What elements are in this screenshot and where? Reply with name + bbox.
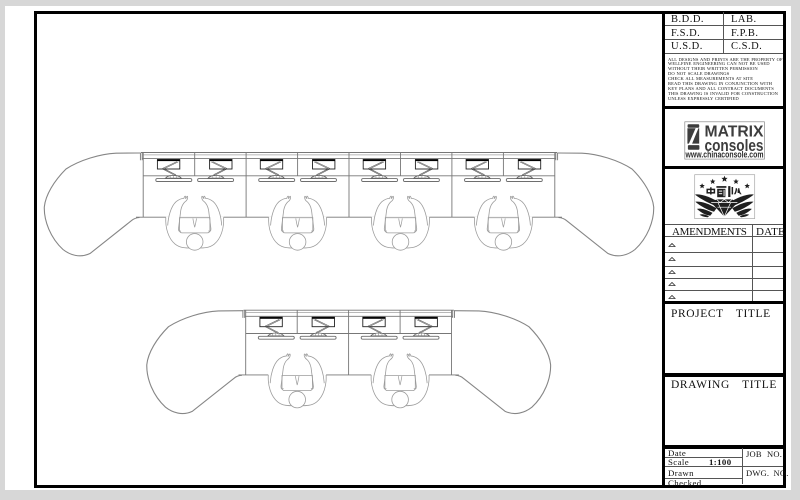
svg-text:www.chinaconsole.com: www.chinaconsole.com — [685, 149, 764, 159]
